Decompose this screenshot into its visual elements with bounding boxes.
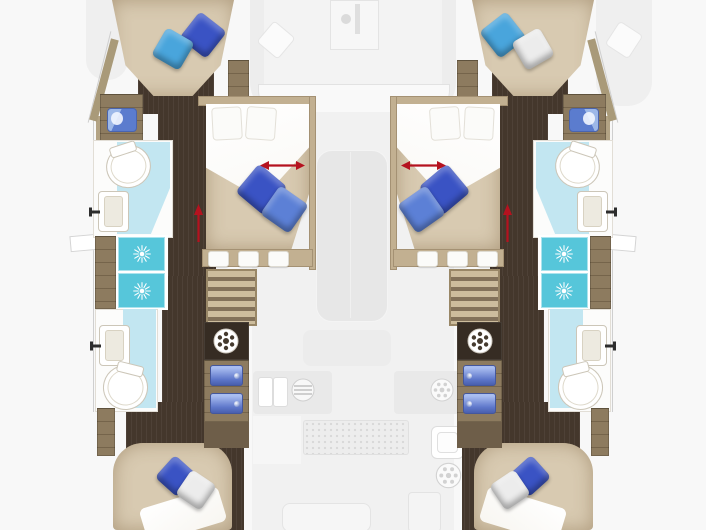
bench-cushion bbox=[238, 251, 259, 267]
vanity-sink-icon bbox=[107, 108, 137, 132]
shower-stall bbox=[118, 273, 165, 308]
sink-basin bbox=[583, 196, 602, 227]
bed-pillow bbox=[463, 106, 495, 141]
bench-cushion bbox=[417, 251, 438, 267]
aft-closet bbox=[591, 408, 609, 456]
drawer-unit bbox=[463, 393, 496, 414]
sink-bowl bbox=[583, 112, 595, 125]
bench-cushion bbox=[447, 251, 468, 267]
shower-cabinet bbox=[590, 236, 611, 309]
shower-spray-icon bbox=[132, 244, 152, 264]
bench-cushion bbox=[268, 251, 289, 267]
sink-basin bbox=[105, 330, 124, 361]
drawer-knob bbox=[466, 373, 472, 379]
companionway-arrow-icon bbox=[502, 204, 513, 244]
port-hull bbox=[0, 0, 353, 530]
starboard-hull bbox=[353, 0, 706, 530]
shower-stall bbox=[118, 237, 165, 271]
washing-machine bbox=[204, 322, 249, 360]
companionway-arrow-icon bbox=[193, 204, 204, 244]
washer-drum-icon bbox=[466, 327, 494, 355]
bed-slide-arrow-icon bbox=[259, 159, 306, 172]
vanity-sink-icon bbox=[569, 108, 599, 132]
sink-bowl bbox=[111, 112, 123, 125]
wood-bulkhead bbox=[457, 422, 502, 448]
shower-stall bbox=[541, 237, 588, 271]
bed-pillow bbox=[245, 106, 277, 141]
drawer-knob bbox=[466, 401, 472, 407]
drawer-knob bbox=[234, 373, 240, 379]
faucet-icon bbox=[606, 210, 614, 213]
cabin-wall bbox=[309, 96, 316, 270]
aft-closet bbox=[97, 408, 115, 456]
faucet-icon bbox=[605, 344, 613, 347]
washing-machine bbox=[457, 322, 502, 360]
shower-spray-icon bbox=[554, 281, 574, 301]
catamaran-floorplan bbox=[0, 0, 706, 530]
bench-cushion bbox=[208, 251, 229, 267]
bench-cushion bbox=[477, 251, 498, 267]
sink-basin bbox=[104, 196, 123, 227]
shower-stall bbox=[541, 273, 588, 308]
sink-basin bbox=[582, 330, 601, 361]
wood-bulkhead bbox=[204, 422, 249, 448]
companionway-stairs bbox=[206, 269, 257, 326]
faucet-icon bbox=[93, 344, 101, 347]
drawer-unit bbox=[463, 365, 496, 386]
sink-icon bbox=[577, 191, 608, 232]
sink-icon bbox=[98, 191, 129, 232]
shower-spray-icon bbox=[554, 244, 574, 264]
washer-drum-icon bbox=[212, 327, 240, 355]
cabin-wall bbox=[390, 96, 397, 270]
companionway-stairs bbox=[449, 269, 500, 326]
bed-pillow bbox=[429, 106, 461, 141]
shower-spray-icon bbox=[132, 281, 152, 301]
faucet-icon bbox=[92, 210, 100, 213]
bed-slide-arrow-icon bbox=[400, 159, 447, 172]
bed-pillow bbox=[211, 106, 243, 141]
drawer-knob bbox=[234, 401, 240, 407]
sink-icon bbox=[99, 325, 130, 366]
shower-cabinet bbox=[95, 236, 116, 309]
drawer-unit bbox=[210, 393, 243, 414]
sink-icon bbox=[576, 325, 607, 366]
drawer-unit bbox=[210, 365, 243, 386]
